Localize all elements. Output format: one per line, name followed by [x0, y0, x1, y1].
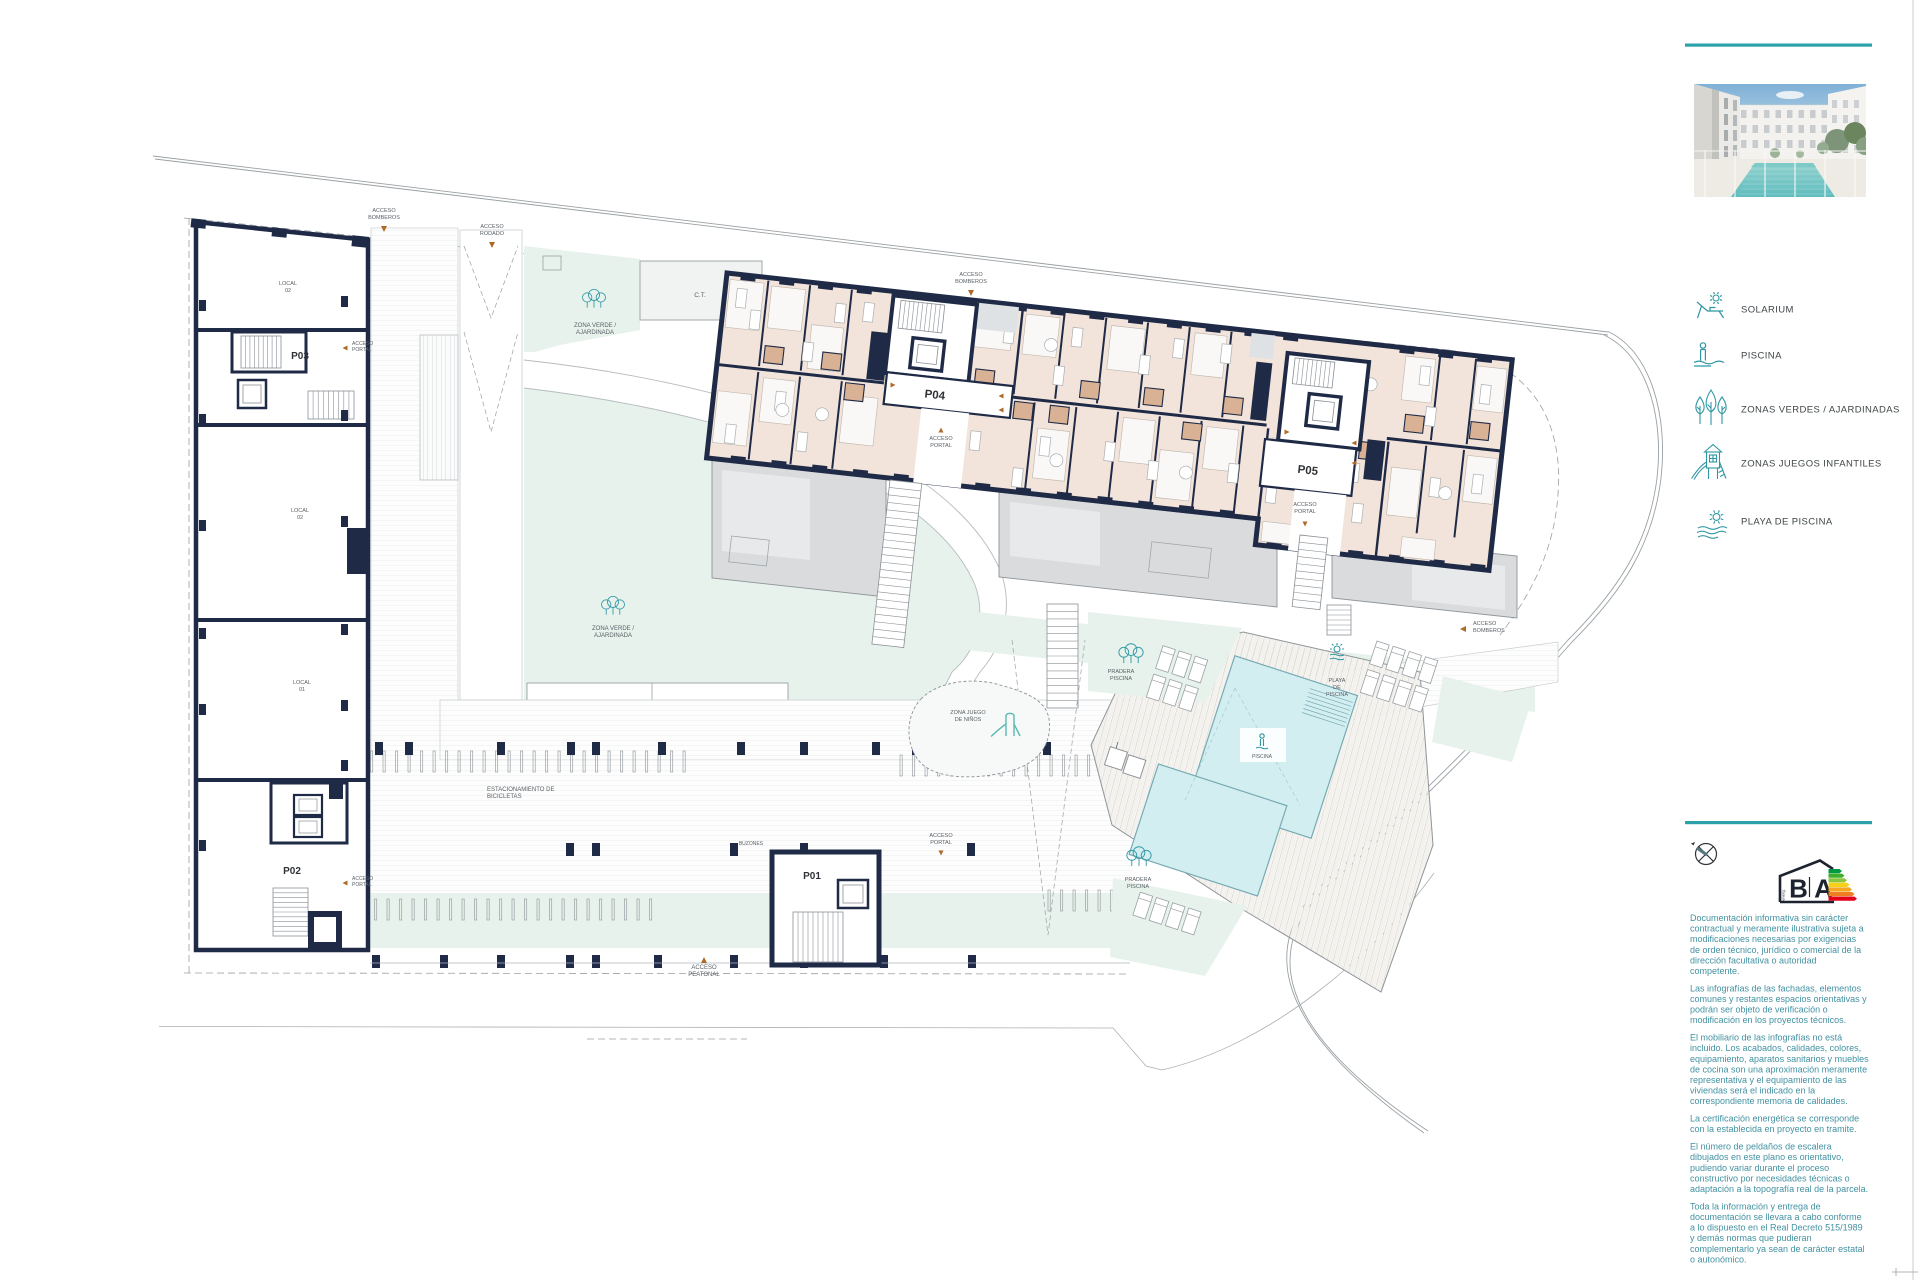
svg-text:contractual y meramente ilustr: contractual y meramente ilustrativa suje…: [1690, 924, 1864, 934]
svg-text:RODADO: RODADO: [480, 231, 505, 237]
svg-text:representativa y el equipamien: representativa y el equipamiento de las: [1690, 1075, 1847, 1085]
svg-text:ACCESO: ACCESO: [691, 965, 717, 971]
svg-text:BUZONES: BUZONES: [739, 841, 764, 847]
svg-text:La certificación energética se: La certificación energética se correspon…: [1690, 1114, 1859, 1124]
svg-text:ACCESO: ACCESO: [480, 224, 504, 230]
svg-text:equipamiento, aparatos sanitar: equipamiento, aparatos sanitarios y mueb…: [1690, 1054, 1869, 1064]
svg-text:o autonómico.: o autonómico.: [1690, 1254, 1747, 1264]
svg-text:PEATONAL: PEATONAL: [688, 972, 720, 978]
svg-text:ACCESO: ACCESO: [929, 833, 953, 839]
svg-text:Toda la información y entrega: Toda la información y entrega de: [1690, 1201, 1821, 1211]
svg-text:podrán ser objeto de verificac: podrán ser objeto de verificación o: [1690, 1005, 1828, 1015]
svg-text:ZONA VERDE /: ZONA VERDE /: [592, 626, 634, 632]
svg-text:PISCINA: PISCINA: [1741, 351, 1782, 362]
svg-text:adaptación a la topografía rea: adaptación a la topografía real de la pa…: [1690, 1184, 1868, 1194]
svg-text:energ.: energ.: [1781, 889, 1786, 900]
svg-text:ZONAS VERDES / AJARDINADAS: ZONAS VERDES / AJARDINADAS: [1741, 405, 1900, 416]
svg-text:PORTAL: PORTAL: [930, 443, 952, 449]
svg-text:AJARDINADA: AJARDINADA: [576, 330, 614, 336]
svg-text:ACCESO: ACCESO: [959, 272, 983, 278]
svg-text:DE: DE: [1333, 685, 1341, 691]
svg-text:01: 01: [299, 687, 305, 693]
svg-text:El mobiliario de las infografí: El mobiliario de las infografías no está: [1690, 1033, 1842, 1043]
svg-text:correspondiente memoria de cal: correspondiente memoria de calidades.: [1690, 1096, 1848, 1106]
svg-text:constructivo por necesidades t: constructivo por necesidades técnicas o: [1690, 1173, 1850, 1183]
svg-text:ACCESO: ACCESO: [1293, 502, 1317, 508]
svg-text:PORTAL: PORTAL: [352, 347, 372, 353]
svg-text:P04: P04: [924, 388, 946, 402]
svg-text:02: 02: [297, 515, 303, 521]
svg-text:PLAYA: PLAYA: [1329, 678, 1346, 684]
svg-text:PISCINA: PISCINA: [1110, 676, 1132, 682]
svg-text:documentación se llevara a cab: documentación se llevara a cabo conforme: [1690, 1212, 1862, 1222]
svg-text:PORTAL: PORTAL: [1294, 509, 1316, 515]
svg-text:P01: P01: [803, 871, 821, 882]
svg-text:ZONAS JUEGOS INFANTILES: ZONAS JUEGOS INFANTILES: [1741, 459, 1882, 470]
svg-text:LOCAL: LOCAL: [279, 281, 297, 287]
svg-text:dirección facultativa o autori: dirección facultativa o autoridad: [1690, 955, 1817, 965]
svg-text:PORTAL: PORTAL: [930, 840, 952, 846]
svg-text:ZONA VERDE /: ZONA VERDE /: [574, 323, 616, 329]
svg-text:PORTAL: PORTAL: [352, 882, 372, 888]
svg-text:ESTACIONAMIENTO DE: ESTACIONAMIENTO DE: [487, 787, 554, 793]
svg-text:Las infografías de las fachada: Las infografías de las fachadas, element…: [1690, 983, 1862, 993]
svg-text:competente.: competente.: [1690, 966, 1740, 976]
svg-text:C.T.: C.T.: [694, 292, 706, 299]
svg-text:P03: P03: [291, 351, 309, 362]
svg-text:PISCINA: PISCINA: [1127, 884, 1149, 890]
svg-text:PRADERA: PRADERA: [1108, 669, 1135, 675]
svg-text:El número de peldaños de escal: El número de peldaños de escalera: [1690, 1142, 1832, 1152]
svg-text:LOCAL: LOCAL: [291, 508, 309, 514]
svg-text:B: B: [1789, 874, 1808, 904]
svg-text:PRADERA: PRADERA: [1125, 877, 1152, 883]
svg-text:complementarlo ya sean de cará: complementarlo ya sean de carácter estat…: [1690, 1244, 1865, 1254]
svg-text:pudiendo variar durante el pro: pudiendo variar durante el proceso: [1690, 1163, 1829, 1173]
svg-text:SOLARIUM: SOLARIUM: [1741, 305, 1794, 316]
svg-text:LOCAL: LOCAL: [293, 680, 311, 686]
svg-text:modificación en los proyectos: modificación en los proyectos técnicos.: [1690, 1015, 1846, 1025]
svg-text:AJARDINADA: AJARDINADA: [594, 633, 632, 639]
svg-text:DE NIÑOS: DE NIÑOS: [955, 716, 982, 723]
svg-text:comunes y restantes espacios o: comunes y restantes espacios orientativa…: [1690, 994, 1867, 1004]
svg-text:BOMBEROS: BOMBEROS: [368, 215, 400, 221]
svg-text:BOMBEROS: BOMBEROS: [955, 279, 987, 285]
svg-text:02: 02: [285, 288, 291, 294]
svg-text:P05: P05: [1297, 464, 1319, 478]
svg-text:ZONA JUEGO: ZONA JUEGO: [950, 710, 986, 716]
svg-text:ACCESO: ACCESO: [929, 436, 953, 442]
svg-text:PISCINA: PISCINA: [1326, 692, 1348, 698]
svg-text:viviendas será el indicado en: viviendas será el indicado en la: [1690, 1086, 1815, 1096]
svg-text:a lo dispuesto en el Real Decr: a lo dispuesto en el Real Decreto 515/19…: [1690, 1223, 1863, 1233]
svg-text:PISCINA: PISCINA: [1252, 754, 1273, 760]
svg-text:dibujados en este plano es ori: dibujados en este plano es orientativo,: [1690, 1152, 1844, 1162]
svg-text:y demás normas que pudieran: y demás normas que pudieran: [1690, 1233, 1812, 1243]
svg-text:BICICLETAS: BICICLETAS: [487, 794, 522, 800]
svg-text:ACCESO: ACCESO: [372, 208, 396, 214]
svg-text:Documentación informativa sin: Documentación informativa sin carácter: [1690, 913, 1848, 923]
svg-text:PLAYA DE PISCINA: PLAYA DE PISCINA: [1741, 517, 1833, 528]
svg-text:ACCESO: ACCESO: [1473, 621, 1497, 627]
svg-text:P02: P02: [283, 866, 301, 877]
svg-text:BOMBEROS: BOMBEROS: [1473, 628, 1505, 634]
svg-text:modificaciones necesarias por: modificaciones necesarias por exigencias: [1690, 934, 1857, 944]
svg-text:de orden técnico, jurídico o c: de orden técnico, jurídico o comercial d…: [1690, 945, 1861, 955]
svg-text:incluido. Los acabados, calida: incluido. Los acabados, calidades, color…: [1690, 1043, 1861, 1053]
svg-text:de cocina son una aproximación: de cocina son una aproximación meramente: [1690, 1064, 1867, 1074]
svg-text:con la establecida en proyecto: con la establecida en proyecto en tramit…: [1690, 1124, 1857, 1134]
